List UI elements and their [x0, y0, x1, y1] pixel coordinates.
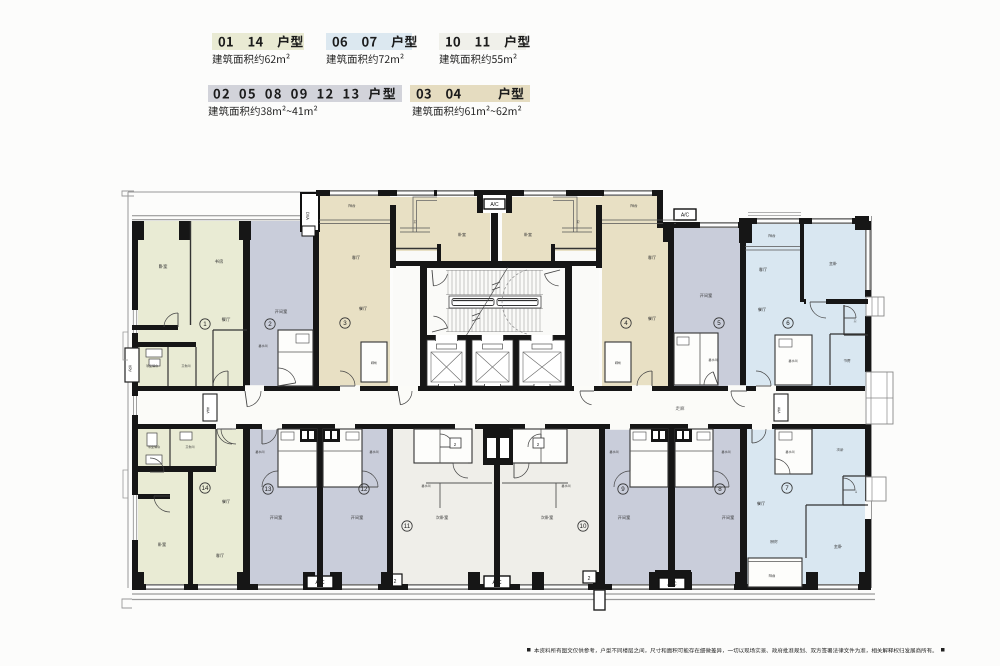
svg-text:13: 13 [265, 486, 272, 493]
svg-text:4: 4 [624, 320, 628, 327]
svg-text:2: 2 [588, 576, 591, 582]
svg-text:2: 2 [268, 321, 272, 328]
svg-text:14: 14 [202, 485, 209, 492]
svg-text:8: 8 [718, 486, 722, 493]
svg-text:10: 10 [580, 523, 587, 530]
svg-text:7: 7 [785, 485, 789, 492]
svg-text:1: 1 [203, 321, 207, 328]
svg-text:A/C: A/C [490, 202, 499, 208]
svg-text:12: 12 [361, 486, 368, 493]
svg-text:2: 2 [394, 579, 397, 585]
svg-text:6: 6 [786, 320, 790, 327]
svg-text:5: 5 [717, 320, 721, 327]
svg-text:3: 3 [343, 320, 347, 327]
svg-text:11: 11 [404, 523, 411, 530]
svg-text:9: 9 [621, 486, 625, 493]
svg-text:A/C: A/C [681, 213, 690, 219]
